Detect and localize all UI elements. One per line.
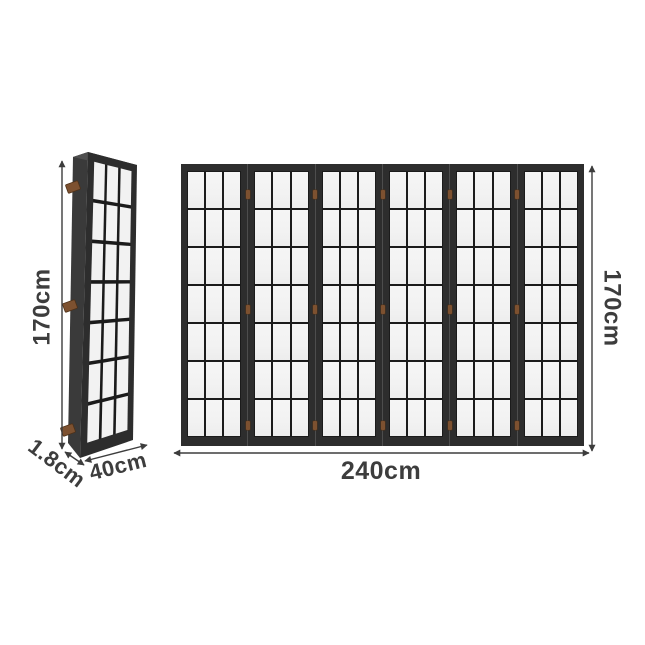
shoji-pane	[117, 358, 129, 395]
shoji-pane	[224, 248, 240, 284]
shoji-pane	[273, 324, 289, 360]
unfolded-divider-view	[181, 164, 584, 446]
shoji-pane	[408, 172, 424, 208]
panel-grid	[187, 171, 241, 437]
shoji-pane	[341, 248, 357, 284]
shoji-pane	[475, 286, 491, 322]
shoji-pane	[102, 361, 114, 399]
shoji-pane	[543, 210, 559, 246]
shoji-pane	[561, 286, 577, 322]
shoji-pane	[273, 286, 289, 322]
shoji-pane	[292, 362, 308, 398]
shoji-pane	[255, 286, 271, 322]
hinge-mark	[313, 305, 317, 314]
shoji-pane	[408, 324, 424, 360]
hinge-mark	[60, 424, 75, 437]
shoji-pane	[494, 324, 510, 360]
shoji-pane	[341, 172, 357, 208]
shoji-pane	[323, 210, 339, 246]
shoji-pane	[525, 286, 541, 322]
shoji-pane	[457, 324, 473, 360]
shoji-pane	[93, 162, 105, 201]
shoji-pane	[323, 324, 339, 360]
divider-panel	[315, 164, 382, 446]
shoji-pane	[188, 286, 204, 322]
shoji-pane	[475, 248, 491, 284]
shoji-pane	[206, 400, 222, 436]
dim-label-height-folded: 170cm	[29, 268, 56, 345]
shoji-pane	[561, 362, 577, 398]
shoji-pane	[359, 324, 375, 360]
shoji-pane	[292, 248, 308, 284]
shoji-pane	[292, 400, 308, 436]
shoji-pane	[341, 210, 357, 246]
shoji-pane	[359, 172, 375, 208]
shoji-pane	[292, 172, 308, 208]
dim-label-width-unfolded: 240cm	[341, 457, 421, 485]
shoji-pane	[390, 248, 406, 284]
shoji-pane	[273, 210, 289, 246]
shoji-pane	[525, 400, 541, 436]
shoji-pane	[390, 362, 406, 398]
shoji-pane	[543, 362, 559, 398]
shoji-pane	[341, 400, 357, 436]
shoji-pane	[116, 396, 128, 434]
shoji-pane	[525, 362, 541, 398]
shoji-pane	[323, 286, 339, 322]
shoji-pane	[359, 210, 375, 246]
shoji-pane	[475, 210, 491, 246]
shoji-pane	[224, 362, 240, 398]
panel-grid	[389, 171, 443, 437]
shoji-pane	[206, 248, 222, 284]
shoji-pane	[494, 172, 510, 208]
shoji-pane	[457, 210, 473, 246]
shoji-pane	[188, 210, 204, 246]
shoji-pane	[543, 172, 559, 208]
shoji-pane	[103, 322, 115, 359]
shoji-pane	[561, 172, 577, 208]
shoji-pane	[188, 248, 204, 284]
shoji-pane	[90, 284, 102, 321]
shoji-pane	[341, 324, 357, 360]
shoji-pane	[525, 248, 541, 284]
folded-panel-front	[80, 152, 137, 458]
shoji-pane	[255, 324, 271, 360]
divider-panel	[181, 164, 247, 446]
shoji-pane	[341, 286, 357, 322]
shoji-pane	[188, 362, 204, 398]
shoji-pane	[106, 205, 118, 242]
shoji-pane	[224, 400, 240, 436]
hinge-mark	[515, 190, 519, 199]
shoji-pane	[102, 399, 114, 438]
shoji-pane	[475, 324, 491, 360]
shoji-pane	[224, 172, 240, 208]
shoji-pane	[543, 286, 559, 322]
shoji-pane	[494, 210, 510, 246]
shoji-pane	[91, 243, 103, 280]
shoji-pane	[120, 168, 132, 205]
folded-panel-view	[60, 152, 137, 458]
hinge-mark	[381, 421, 385, 430]
shoji-pane	[457, 286, 473, 322]
hinge-mark	[448, 190, 452, 199]
shoji-pane	[206, 362, 222, 398]
shoji-pane	[188, 324, 204, 360]
shoji-pane	[426, 248, 442, 284]
shoji-pane	[408, 400, 424, 436]
shoji-pane	[494, 362, 510, 398]
shoji-pane	[224, 210, 240, 246]
shoji-pane	[323, 248, 339, 284]
shoji-pane	[292, 286, 308, 322]
shoji-pane	[525, 172, 541, 208]
shoji-pane	[117, 321, 129, 357]
shoji-pane	[475, 400, 491, 436]
shoji-pane	[457, 362, 473, 398]
shoji-pane	[475, 172, 491, 208]
room-divider-dimension-diagram: 170cm 1.8cm 40cm 170cm 240cm	[0, 0, 645, 645]
folded-panel-muntins	[87, 162, 131, 443]
shoji-pane	[323, 400, 339, 436]
shoji-pane	[255, 210, 271, 246]
shoji-pane	[543, 400, 559, 436]
shoji-pane	[273, 362, 289, 398]
shoji-pane	[426, 400, 442, 436]
dim-line-width-folded	[85, 445, 147, 461]
shoji-pane	[543, 248, 559, 284]
dim-label-height-unfolded: 170cm	[599, 269, 626, 346]
panel-grid	[322, 171, 376, 437]
shoji-pane	[426, 286, 442, 322]
shoji-pane	[255, 248, 271, 284]
shoji-pane	[359, 286, 375, 322]
shoji-pane	[426, 210, 442, 246]
shoji-pane	[119, 207, 131, 243]
hinge-mark	[515, 421, 519, 430]
shoji-pane	[118, 284, 130, 319]
shoji-pane	[457, 172, 473, 208]
shoji-pane	[359, 248, 375, 284]
shoji-pane	[475, 362, 491, 398]
shoji-pane	[457, 400, 473, 436]
shoji-pane	[273, 400, 289, 436]
shoji-pane	[89, 323, 101, 361]
dim-label-depth-folded: 1.8cm	[24, 433, 91, 492]
divider-panel	[247, 164, 314, 446]
hinge-mark	[246, 190, 250, 199]
shoji-pane	[390, 286, 406, 322]
shoji-pane	[119, 245, 131, 280]
shoji-pane	[457, 248, 473, 284]
shoji-pane	[408, 362, 424, 398]
panel-grid	[254, 171, 308, 437]
hinge-mark	[381, 305, 385, 314]
hinge-mark	[515, 305, 519, 314]
shoji-pane	[323, 362, 339, 398]
shoji-pane	[390, 324, 406, 360]
hinge-mark	[65, 181, 80, 194]
shoji-pane	[341, 362, 357, 398]
folded-panel-top-edge	[73, 152, 137, 169]
shoji-pane	[408, 248, 424, 284]
shoji-pane	[525, 210, 541, 246]
shoji-pane	[390, 172, 406, 208]
shoji-pane	[426, 362, 442, 398]
shoji-pane	[206, 324, 222, 360]
hinge-mark	[246, 421, 250, 430]
shoji-pane	[561, 324, 577, 360]
divider-panel	[517, 164, 584, 446]
shoji-pane	[292, 324, 308, 360]
shoji-pane	[88, 363, 100, 402]
shoji-pane	[105, 244, 117, 280]
shoji-pane	[188, 400, 204, 436]
shoji-pane	[87, 403, 99, 443]
shoji-pane	[323, 172, 339, 208]
shoji-pane	[561, 400, 577, 436]
shoji-pane	[426, 324, 442, 360]
shoji-pane	[255, 400, 271, 436]
shoji-pane	[408, 210, 424, 246]
shoji-pane	[494, 286, 510, 322]
shoji-pane	[359, 400, 375, 436]
panel-grid	[524, 171, 578, 437]
shoji-pane	[206, 172, 222, 208]
shoji-pane	[224, 324, 240, 360]
shoji-pane	[494, 400, 510, 436]
hinge-mark	[381, 190, 385, 199]
shoji-pane	[104, 284, 116, 320]
shoji-pane	[107, 165, 119, 203]
shoji-pane	[543, 324, 559, 360]
folded-panel-spine	[68, 152, 88, 458]
shoji-pane	[273, 248, 289, 284]
shoji-pane	[561, 210, 577, 246]
hinge-mark	[246, 305, 250, 314]
dim-label-width-folded: 40cm	[87, 447, 150, 485]
divider-panel	[382, 164, 449, 446]
shoji-pane	[188, 172, 204, 208]
shoji-pane	[206, 286, 222, 322]
shoji-pane	[561, 248, 577, 284]
panel-grid	[456, 171, 510, 437]
shoji-pane	[224, 286, 240, 322]
shoji-pane	[426, 172, 442, 208]
divider-panel	[449, 164, 516, 446]
shoji-pane	[92, 203, 104, 241]
shoji-pane	[390, 400, 406, 436]
shoji-pane	[255, 362, 271, 398]
shoji-pane	[494, 248, 510, 284]
shoji-pane	[255, 172, 271, 208]
folded-panel-grid	[60, 162, 131, 443]
shoji-pane	[408, 286, 424, 322]
hinge-mark	[62, 300, 77, 313]
hinge-mark	[313, 421, 317, 430]
shoji-pane	[273, 172, 289, 208]
shoji-pane	[359, 362, 375, 398]
shoji-pane	[525, 324, 541, 360]
shoji-pane	[206, 210, 222, 246]
hinge-mark	[448, 305, 452, 314]
hinge-mark	[313, 190, 317, 199]
shoji-pane	[390, 210, 406, 246]
hinge-mark	[448, 421, 452, 430]
dim-line-depth-folded	[65, 452, 84, 465]
shoji-pane	[292, 210, 308, 246]
